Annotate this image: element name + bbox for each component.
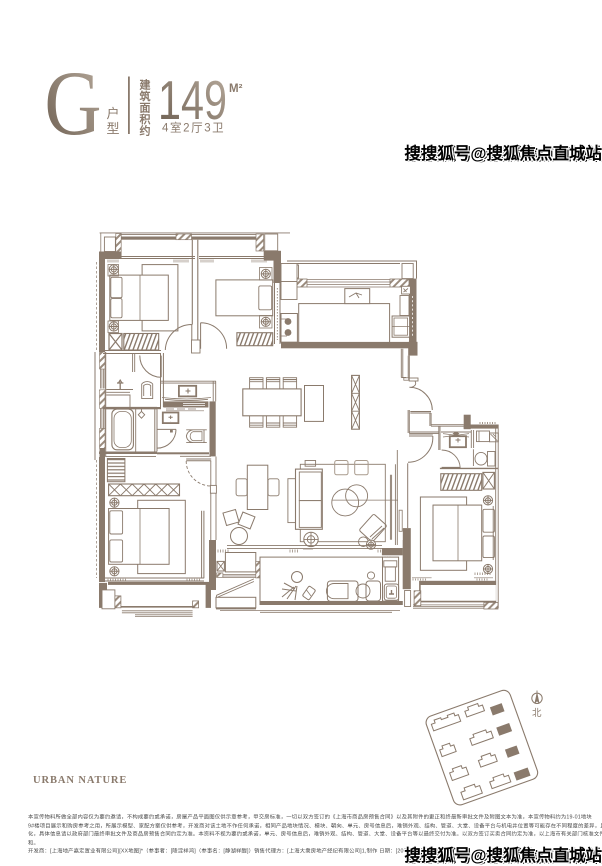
svg-text:户: 户 <box>107 106 120 121</box>
svg-text:4室2厅3卫: 4室2厅3卫 <box>162 121 225 135</box>
svg-text:G: G <box>44 53 101 155</box>
svg-text:约: 约 <box>140 124 151 138</box>
svg-text:M²: M² <box>229 83 243 95</box>
svg-text:URBAN NATURE: URBAN NATURE <box>33 775 127 786</box>
svg-text:北: 北 <box>532 708 542 719</box>
svg-text:面: 面 <box>140 102 151 115</box>
svg-text:筑: 筑 <box>140 89 151 103</box>
svg-text:建: 建 <box>140 78 152 92</box>
svg-text:型: 型 <box>107 121 120 136</box>
svg-text:积: 积 <box>140 112 151 126</box>
